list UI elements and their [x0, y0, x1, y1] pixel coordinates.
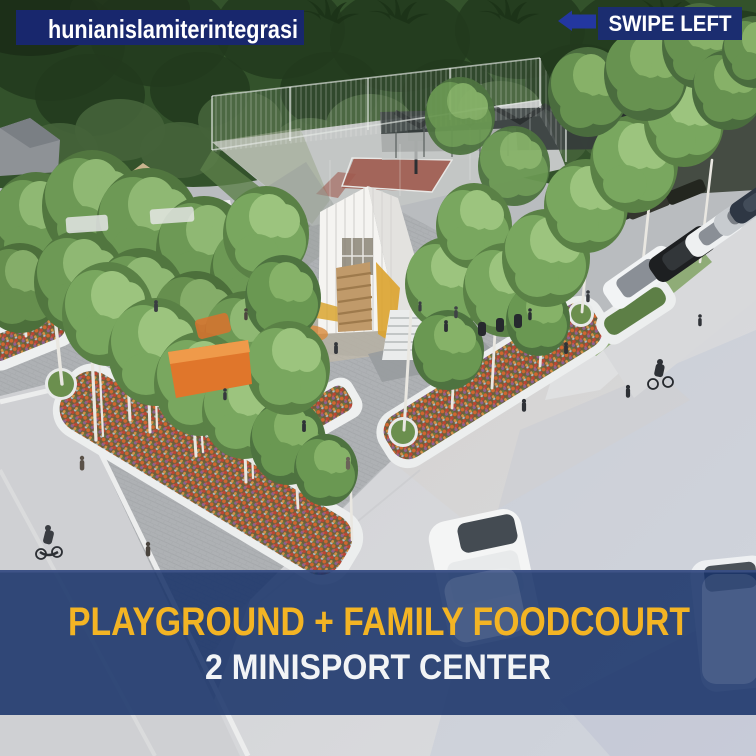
svg-text:hunianislamiterintegrasi: hunianislamiterintegrasi [48, 14, 298, 44]
svg-text:2 MINISPORT CENTER: 2 MINISPORT CENTER [205, 648, 551, 687]
svg-text:PLAYGROUND + FAMILY FOODCOURT: PLAYGROUND + FAMILY FOODCOURT [68, 600, 690, 644]
svg-text:SWIPE LEFT: SWIPE LEFT [609, 11, 732, 36]
